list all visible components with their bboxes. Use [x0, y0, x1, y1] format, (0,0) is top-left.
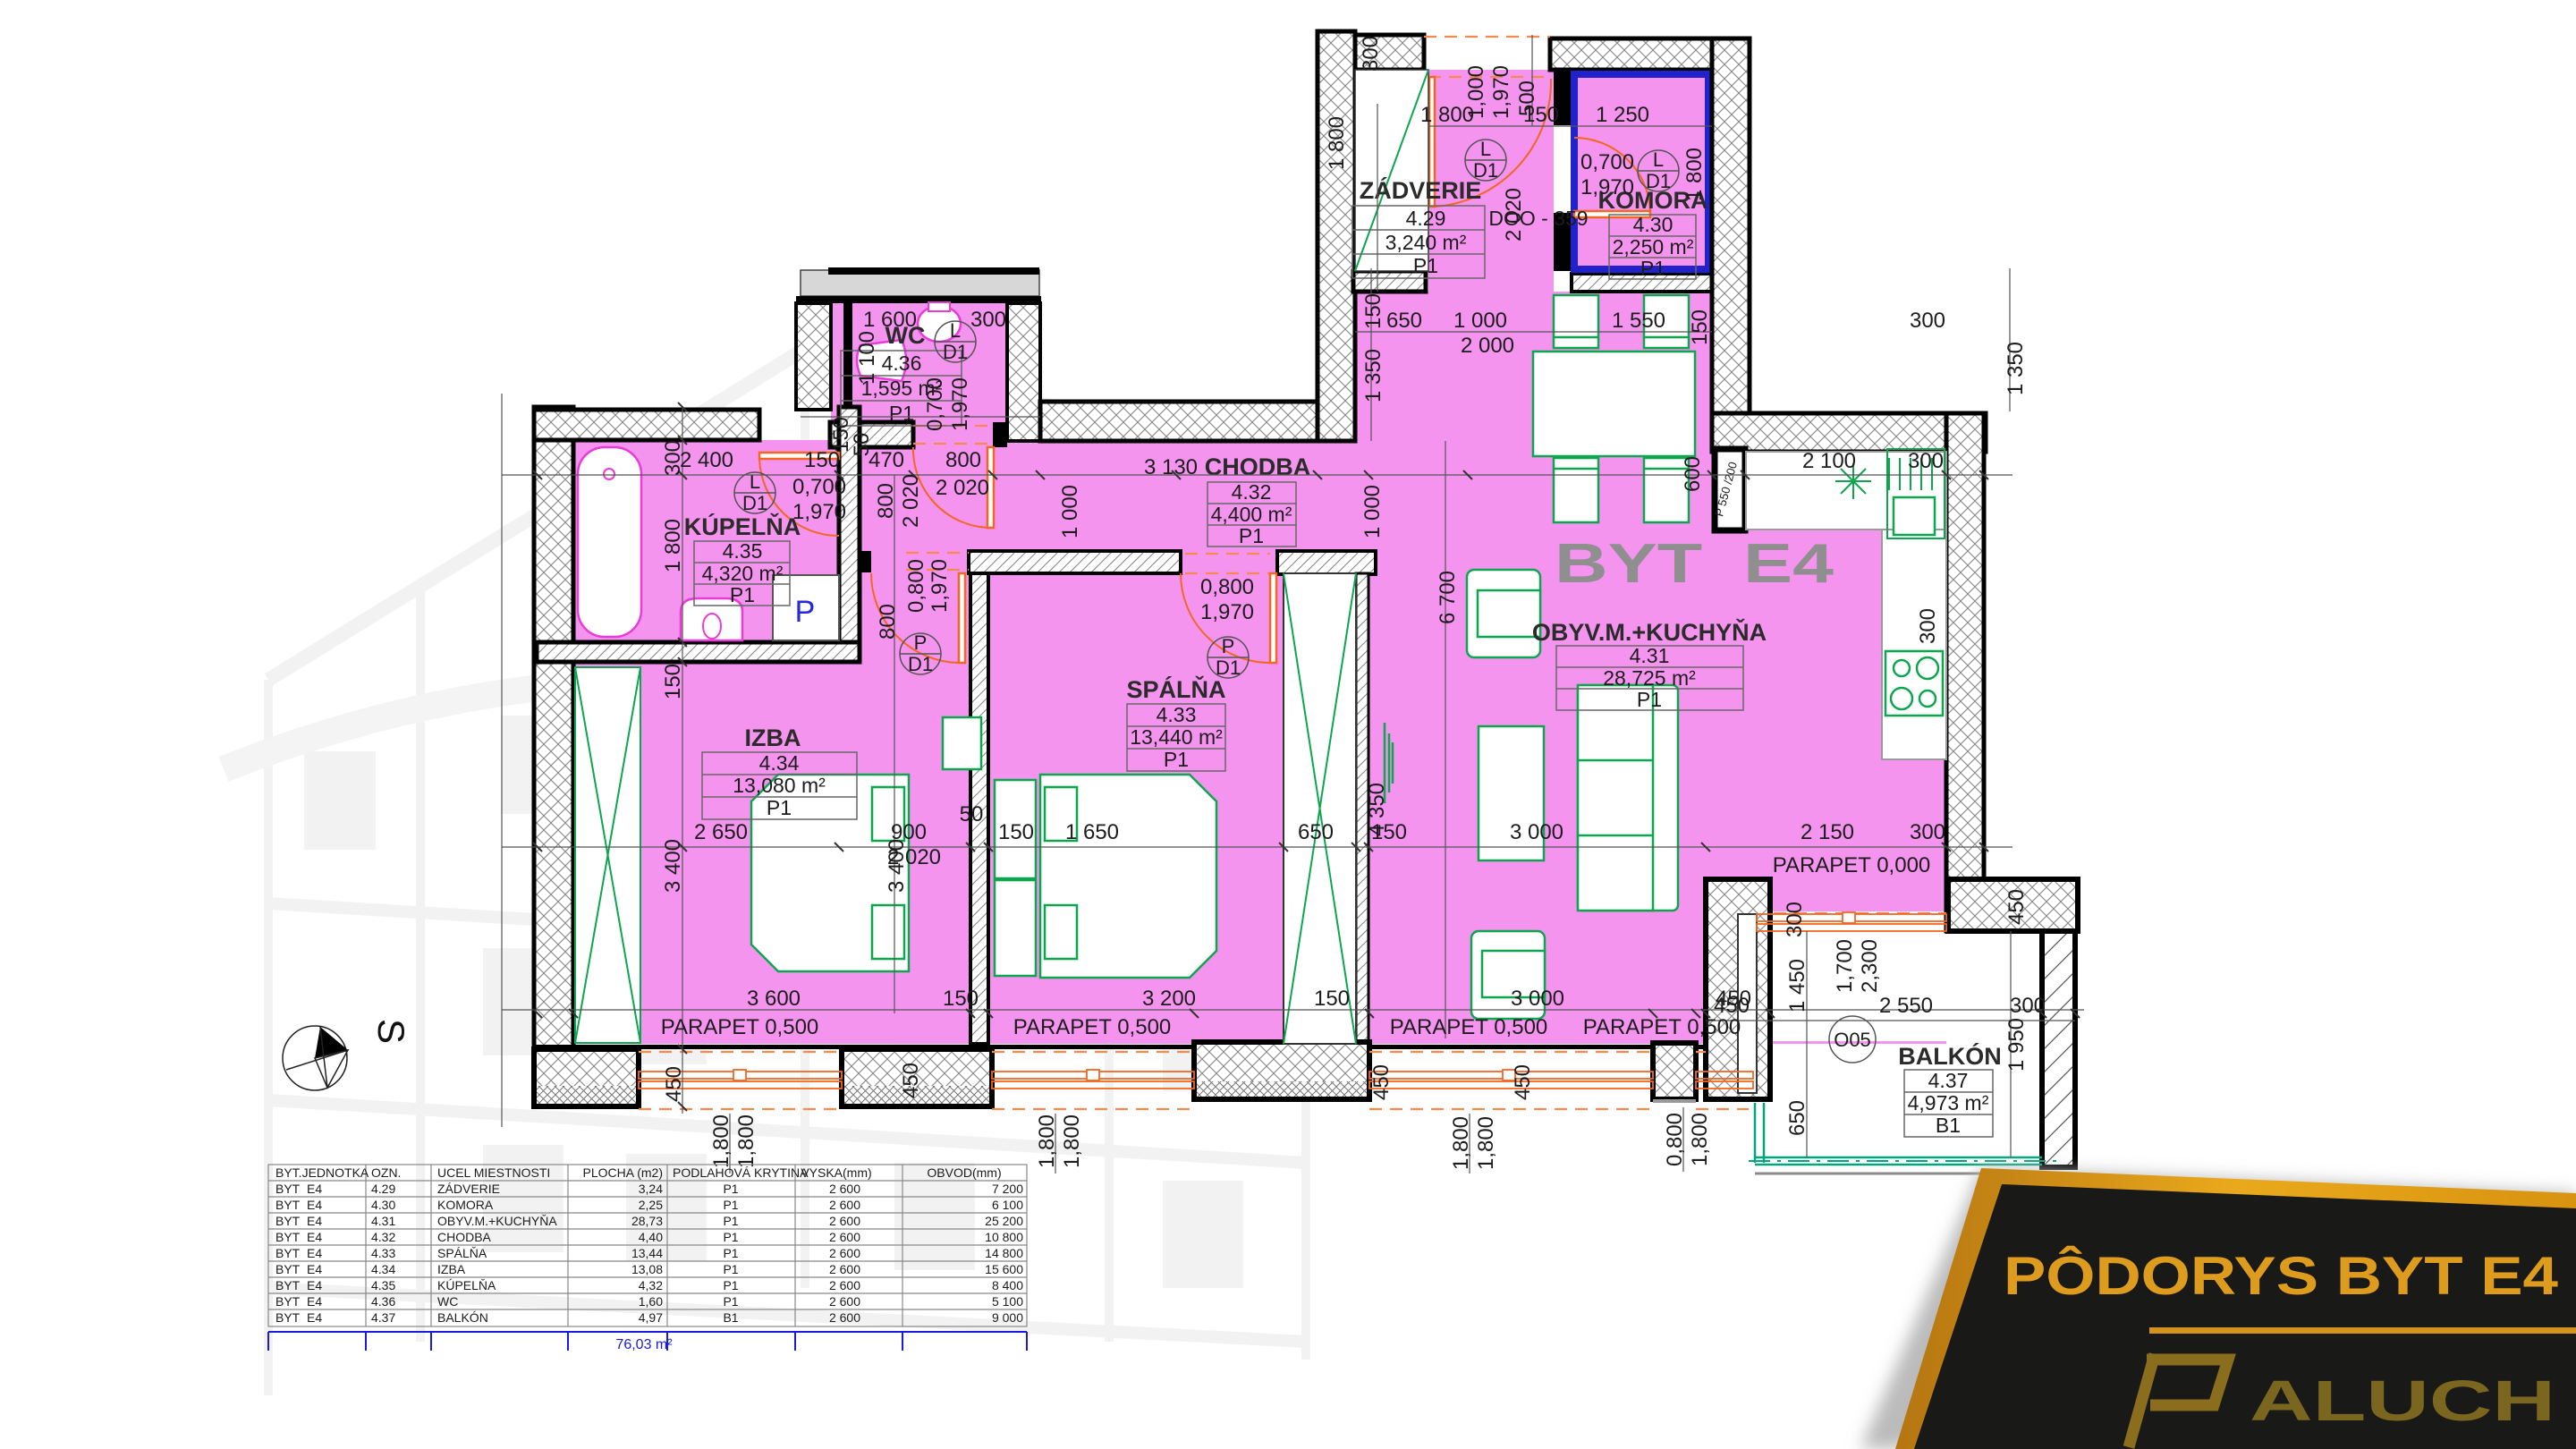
svg-text:800: 800 [874, 483, 898, 519]
svg-text:BALKÓN: BALKÓN [437, 1310, 488, 1325]
svg-text:BYT E4: BYT E4 [275, 1278, 322, 1292]
svg-text:4,400 m²: 4,400 m² [1211, 503, 1292, 526]
svg-text:25 200: 25 200 [985, 1214, 1023, 1228]
svg-text:BYT E4: BYT E4 [275, 1182, 322, 1196]
svg-text:1 350: 1 350 [2004, 342, 2028, 395]
svg-text:P1: P1 [723, 1182, 738, 1196]
svg-text:PLOCHA (m2): PLOCHA (m2) [583, 1165, 663, 1180]
svg-text:1 800: 1 800 [1325, 116, 1349, 170]
svg-text:D1: D1 [943, 341, 968, 363]
svg-text:3 200: 3 200 [1142, 987, 1196, 1011]
svg-text:2 650: 2 650 [694, 820, 748, 844]
svg-text:1,800: 1,800 [1449, 1116, 1473, 1170]
svg-text:BYT E4: BYT E4 [275, 1230, 322, 1244]
svg-text:470: 470 [869, 448, 904, 472]
svg-text:UCEL MIESTNOSTI: UCEL MIESTNOSTI [437, 1165, 550, 1180]
svg-text:9 000: 9 000 [992, 1310, 1023, 1325]
svg-text:CHODBA: CHODBA [1205, 453, 1311, 480]
svg-text:OBYV.M.+KUCHYŇA: OBYV.M.+KUCHYŇA [1532, 618, 1767, 646]
svg-text:BALKÓN: BALKÓN [1898, 1042, 2002, 1070]
svg-text:4.31: 4.31 [371, 1214, 395, 1228]
svg-text:3 600: 3 600 [747, 987, 801, 1011]
svg-text:1 000: 1 000 [1360, 485, 1385, 538]
svg-text:10 800: 10 800 [985, 1230, 1023, 1244]
svg-text:4.30: 4.30 [371, 1198, 395, 1212]
svg-text:4.35: 4.35 [371, 1278, 395, 1292]
svg-text:L: L [1653, 148, 1664, 171]
svg-text:P1: P1 [723, 1294, 738, 1309]
svg-text:300: 300 [1916, 608, 1940, 644]
svg-text:150: 150 [1314, 987, 1350, 1011]
svg-text:28,725 m²: 28,725 m² [1603, 666, 1696, 690]
svg-text:150: 150 [1371, 820, 1407, 844]
svg-text:BYT E4: BYT E4 [275, 1262, 322, 1276]
svg-text:150: 150 [998, 820, 1034, 844]
svg-text:WC: WC [437, 1294, 458, 1309]
svg-text:PARAPET 0,500: PARAPET 0,500 [1583, 1015, 1741, 1039]
svg-text:450: 450 [1511, 1064, 1535, 1100]
svg-text:3 000: 3 000 [1510, 820, 1563, 844]
svg-text:1,800: 1,800 [1060, 1114, 1084, 1168]
svg-text:450: 450 [1369, 1064, 1394, 1100]
svg-text:450: 450 [662, 1066, 686, 1102]
svg-text:0,800: 0,800 [904, 559, 928, 613]
svg-text:1,000: 1,000 [1464, 65, 1488, 119]
svg-text:P1: P1 [1640, 257, 1665, 280]
svg-text:6 100: 6 100 [992, 1198, 1023, 1212]
svg-text:OBVOD(mm): OBVOD(mm) [927, 1165, 1001, 1180]
svg-text:D1: D1 [1473, 159, 1498, 182]
svg-text:P1: P1 [723, 1198, 738, 1212]
svg-text:800: 800 [876, 604, 900, 640]
svg-text:2 600: 2 600 [829, 1310, 860, 1325]
svg-text:2 020: 2 020 [1502, 188, 1526, 241]
svg-text:1,60: 1,60 [639, 1294, 663, 1309]
svg-text:650: 650 [1298, 820, 1334, 844]
svg-text:650: 650 [1386, 309, 1422, 333]
svg-text:450: 450 [1714, 994, 1750, 1018]
svg-text:4.36: 4.36 [882, 352, 922, 375]
svg-text:4,97: 4,97 [639, 1310, 663, 1325]
svg-text:150: 150 [1688, 309, 1712, 345]
svg-text:50: 50 [960, 802, 984, 826]
svg-text:2 600: 2 600 [829, 1278, 860, 1292]
svg-text:500: 500 [1515, 80, 1539, 116]
svg-text:1,800: 1,800 [1035, 1114, 1059, 1168]
svg-text:ALUCH: ALUCH [2250, 1368, 2555, 1433]
svg-text:13,440 m²: 13,440 m² [1130, 725, 1223, 749]
svg-text:4,32: 4,32 [639, 1278, 663, 1292]
svg-text:1 950: 1 950 [2004, 1018, 2029, 1072]
svg-text:1,700: 1,700 [1833, 939, 1857, 993]
svg-text:300: 300 [970, 308, 1006, 332]
svg-text:SPÁLŇA: SPÁLŇA [437, 1246, 487, 1260]
svg-text:6 700: 6 700 [1436, 571, 1460, 624]
svg-text:150: 150 [943, 987, 979, 1011]
svg-text:4,40: 4,40 [639, 1230, 663, 1244]
svg-text:P1: P1 [1239, 524, 1264, 547]
svg-text:300: 300 [2010, 994, 2046, 1018]
svg-text:28,73: 28,73 [631, 1214, 663, 1228]
svg-text:150: 150 [804, 448, 840, 472]
svg-text:BYT E4: BYT E4 [275, 1198, 322, 1212]
svg-text:13,080 m²: 13,080 m² [733, 774, 826, 797]
svg-text:8 400: 8 400 [992, 1278, 1023, 1292]
svg-text:0,700: 0,700 [1580, 150, 1634, 174]
svg-text:1 800: 1 800 [661, 519, 685, 572]
svg-text:0,800: 0,800 [1663, 1113, 1687, 1166]
svg-text:KÚPELŇA: KÚPELŇA [684, 513, 801, 540]
svg-text:13,08: 13,08 [631, 1262, 663, 1276]
svg-text:P1: P1 [767, 796, 792, 819]
svg-text:ZÁDVERIE: ZÁDVERIE [437, 1182, 500, 1196]
svg-text:P1: P1 [730, 583, 755, 606]
svg-text:3,240 m²: 3,240 m² [1385, 231, 1467, 254]
svg-text:IZBA: IZBA [437, 1262, 466, 1276]
svg-text:P1: P1 [723, 1246, 738, 1260]
svg-text:13,44: 13,44 [631, 1246, 663, 1260]
svg-text:2 600: 2 600 [829, 1230, 860, 1244]
svg-text:4.33: 4.33 [371, 1246, 395, 1260]
svg-text:1,800: 1,800 [1474, 1116, 1498, 1170]
svg-text:P1: P1 [1413, 254, 1438, 277]
svg-text:P1: P1 [1637, 688, 1662, 711]
svg-text:300: 300 [1359, 36, 1383, 72]
svg-text:650: 650 [1785, 1100, 1809, 1136]
svg-text:KÚPELŇA: KÚPELŇA [437, 1278, 496, 1292]
svg-text:14 800: 14 800 [985, 1246, 1023, 1260]
svg-text:P: P [795, 595, 816, 629]
svg-text:CHODBA: CHODBA [437, 1230, 492, 1244]
svg-text:P1: P1 [723, 1214, 738, 1228]
svg-text:BYT E4: BYT E4 [275, 1246, 322, 1260]
svg-text:4.36: 4.36 [371, 1294, 395, 1309]
svg-text:VYSKA(mm): VYSKA(mm) [801, 1165, 871, 1180]
svg-text:150: 150 [661, 664, 685, 699]
svg-text:1 000: 1 000 [1453, 309, 1507, 333]
svg-text:2 550: 2 550 [1879, 994, 1933, 1018]
svg-text:P1: P1 [889, 402, 914, 425]
svg-text:2 600: 2 600 [829, 1198, 860, 1212]
svg-text:2 020: 2 020 [899, 474, 923, 528]
svg-text:D1: D1 [742, 492, 767, 514]
svg-text:3 400: 3 400 [885, 839, 909, 893]
svg-text:4.33: 4.33 [1157, 703, 1197, 726]
svg-text:15 600: 15 600 [985, 1262, 1023, 1276]
svg-text:PARAPET 0,500: PARAPET 0,500 [1013, 1015, 1172, 1039]
svg-text:4.35: 4.35 [723, 539, 763, 563]
svg-text:1 550: 1 550 [1612, 309, 1665, 333]
svg-text:2 600: 2 600 [829, 1294, 860, 1309]
svg-text:BYT E4: BYT E4 [1555, 533, 1835, 595]
svg-text:PARAPET 0,500: PARAPET 0,500 [1390, 1015, 1548, 1039]
svg-text:4.37: 4.37 [371, 1310, 395, 1325]
svg-text:4.29: 4.29 [371, 1182, 395, 1196]
svg-text:BYT E4: BYT E4 [275, 1214, 322, 1228]
svg-text:3 000: 3 000 [1511, 987, 1564, 1011]
svg-text:PARAPET 0,000: PARAPET 0,000 [1773, 853, 1931, 877]
svg-text:P1: P1 [723, 1262, 738, 1276]
svg-text:3 400: 3 400 [661, 839, 685, 893]
svg-text:D1: D1 [1646, 170, 1671, 192]
svg-text:0,700: 0,700 [792, 475, 846, 499]
svg-text:P1: P1 [1164, 748, 1189, 771]
svg-text:150: 150 [1361, 293, 1385, 329]
svg-text:2 600: 2 600 [829, 1214, 860, 1228]
svg-text:BYT.JEDNOTKA: BYT.JEDNOTKA [275, 1165, 369, 1180]
svg-text:KOMORA: KOMORA [437, 1198, 494, 1212]
svg-text:4.34: 4.34 [759, 751, 800, 775]
svg-text:450: 450 [2004, 889, 2029, 925]
svg-text:4.32: 4.32 [371, 1230, 395, 1244]
svg-text:300: 300 [1908, 449, 1944, 473]
svg-text:1 000: 1 000 [1058, 485, 1082, 538]
svg-text:1,970: 1,970 [1200, 600, 1254, 624]
svg-text:600: 600 [1681, 456, 1705, 492]
svg-text:300: 300 [661, 440, 685, 476]
svg-text:1,800: 1,800 [734, 1114, 758, 1168]
svg-text:D1: D1 [1216, 657, 1241, 679]
svg-text:P1: P1 [723, 1230, 738, 1244]
svg-text:2 020: 2 020 [936, 476, 989, 500]
svg-text:1,970: 1,970 [948, 377, 972, 431]
svg-text:O05: O05 [1834, 1029, 1871, 1051]
svg-text:B1: B1 [1936, 1114, 1961, 1137]
svg-text:4.31: 4.31 [1630, 644, 1670, 667]
svg-text:1 100: 1 100 [855, 331, 879, 385]
svg-text:3,24: 3,24 [639, 1182, 663, 1196]
svg-text:4.32: 4.32 [1232, 480, 1272, 504]
svg-text:4,320 m²: 4,320 m² [702, 562, 784, 585]
svg-text:2 100: 2 100 [1802, 449, 1856, 473]
svg-text:2,300: 2,300 [1858, 939, 1882, 993]
svg-text:S: S [370, 1019, 412, 1044]
svg-text:0,700: 0,700 [923, 377, 947, 431]
svg-text:76,03 m²: 76,03 m² [615, 1337, 673, 1352]
svg-text:P: P [1222, 635, 1235, 657]
svg-text:1 250: 1 250 [1596, 103, 1649, 127]
svg-text:2 600: 2 600 [829, 1182, 860, 1196]
svg-text:2,25: 2,25 [639, 1198, 663, 1212]
svg-text:2 000: 2 000 [1461, 334, 1514, 358]
svg-text:IZBA: IZBA [745, 724, 801, 751]
svg-text:OZN.: OZN. [371, 1165, 401, 1180]
svg-text:1 650: 1 650 [1065, 820, 1119, 844]
svg-text:800: 800 [945, 448, 981, 472]
svg-text:BYT E4: BYT E4 [275, 1294, 322, 1309]
svg-text:B1: B1 [723, 1310, 738, 1325]
svg-text:300: 300 [1910, 309, 1945, 333]
svg-text:2,250 m²: 2,250 m² [1613, 235, 1694, 258]
svg-text:4.34: 4.34 [371, 1262, 395, 1276]
svg-text:D1: D1 [908, 653, 933, 675]
svg-text:300: 300 [1910, 820, 1945, 844]
svg-text:5 100: 5 100 [992, 1294, 1023, 1309]
svg-text:P1: P1 [723, 1278, 738, 1292]
svg-text:2 150: 2 150 [1801, 820, 1854, 844]
svg-text:1,970: 1,970 [928, 559, 952, 613]
svg-text:PÔDORYS BYT E4: PÔDORYS BYT E4 [2004, 1246, 2559, 1306]
svg-text:1 600: 1 600 [863, 308, 917, 332]
svg-text:P: P [914, 631, 928, 654]
svg-text:4.30: 4.30 [1633, 213, 1674, 236]
svg-text:1,800: 1,800 [1688, 1113, 1712, 1166]
svg-text:PARAPET 0,500: PARAPET 0,500 [661, 1015, 819, 1039]
svg-text:L: L [950, 319, 961, 342]
svg-text:1 800: 1 800 [1682, 148, 1707, 201]
svg-text:2 400: 2 400 [680, 448, 733, 472]
svg-text:4,973 m²: 4,973 m² [1908, 1091, 1989, 1114]
svg-text:1,800: 1,800 [709, 1114, 733, 1168]
svg-text:1 450: 1 450 [1785, 959, 1809, 1013]
svg-text:L: L [750, 470, 760, 493]
svg-text:PODLAHOVÁ KRYTINA: PODLAHOVÁ KRYTINA [673, 1165, 809, 1180]
svg-text:450: 450 [899, 1063, 923, 1098]
svg-text:SPÁLŇA: SPÁLŇA [1126, 675, 1225, 703]
svg-text:1,970: 1,970 [1580, 175, 1634, 199]
svg-text:4.29: 4.29 [1406, 207, 1446, 230]
svg-text:BYT E4: BYT E4 [275, 1310, 322, 1325]
svg-text:1 350: 1 350 [1361, 349, 1385, 402]
svg-text:0,800: 0,800 [1200, 575, 1254, 599]
svg-text:OBYV.M.+KUCHYŇA: OBYV.M.+KUCHYŇA [437, 1214, 557, 1228]
svg-text:300: 300 [1783, 902, 1807, 937]
svg-text:7 200: 7 200 [992, 1182, 1023, 1196]
svg-text:4.37: 4.37 [1928, 1069, 1969, 1092]
svg-text:2 600: 2 600 [829, 1262, 860, 1276]
svg-text:2 600: 2 600 [829, 1246, 860, 1260]
svg-text:L: L [1480, 138, 1491, 160]
svg-text:1,970: 1,970 [792, 500, 846, 524]
svg-text:3 130: 3 130 [1144, 455, 1198, 479]
svg-text:1,970: 1,970 [1489, 65, 1513, 119]
